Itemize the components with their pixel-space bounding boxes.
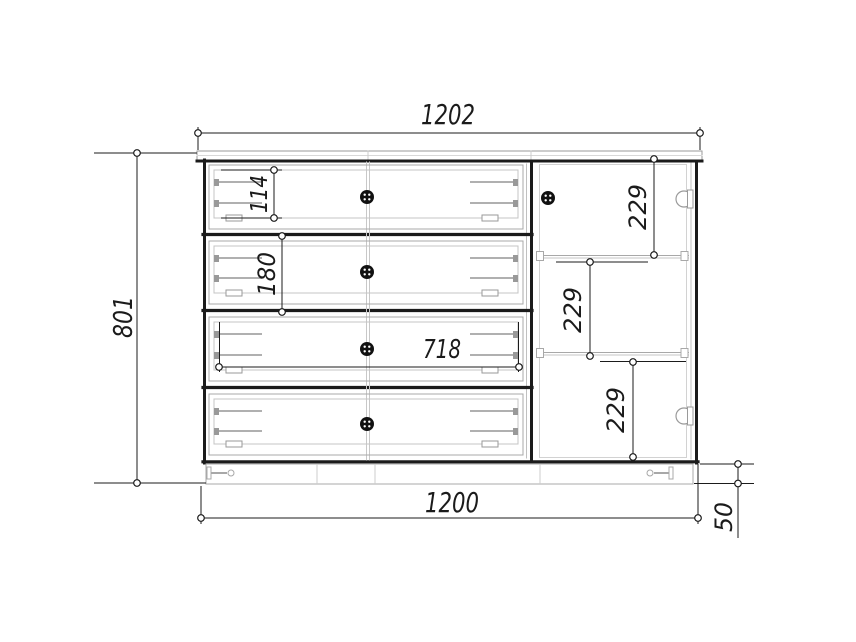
drawer2-knob-icon — [360, 265, 374, 279]
dim-door-section-top: 229 — [624, 156, 657, 259]
dim-drawer2-front-height: 180 — [253, 233, 285, 316]
dim-label-top-width: 1202 — [421, 98, 475, 131]
dim-label-door-section-middle: 229 — [559, 287, 587, 333]
drawer1-knob-icon — [360, 190, 374, 204]
top-panel — [197, 151, 702, 161]
dim-label-bottom-width: 1200 — [425, 486, 479, 519]
dim-plinth-height: 50 — [694, 461, 754, 538]
hinge-top-icon — [676, 190, 693, 208]
dim-label-drawer2-front-height: 180 — [253, 252, 281, 296]
hinge-bottom-icon — [676, 407, 693, 425]
dim-top-width: 1202 — [195, 98, 704, 150]
leg-left-icon — [207, 467, 234, 479]
dim-label-door-section-bottom: 229 — [602, 387, 630, 433]
dim-door-section-middle: 229 — [556, 259, 648, 360]
dim-door-section-bottom: 229 — [600, 359, 686, 461]
dim-label-drawer1-inner-height: 114 — [247, 175, 273, 213]
dim-left-height: 801 — [94, 150, 206, 487]
dim-label-plinth-height: 50 — [710, 502, 738, 532]
dim-label-left-height: 801 — [109, 296, 139, 338]
dim-drawer1-inner-height: 114 — [221, 167, 282, 222]
drawer4-knob-icon — [360, 417, 374, 431]
dim-label-drawer-inner-width: 718 — [423, 335, 461, 365]
dim-bottom-width: 1200 — [198, 464, 702, 524]
leg-right-icon — [647, 467, 673, 479]
drawer3-knob-icon — [360, 342, 374, 356]
furniture-technical-drawing: 1202 801 114 180 718 229 — [0, 0, 856, 642]
drawing-svg: 1202 801 114 180 718 229 — [0, 0, 856, 642]
dim-label-door-section-top: 229 — [624, 184, 652, 230]
plinth — [206, 464, 693, 484]
door-knob-icon — [541, 191, 555, 205]
